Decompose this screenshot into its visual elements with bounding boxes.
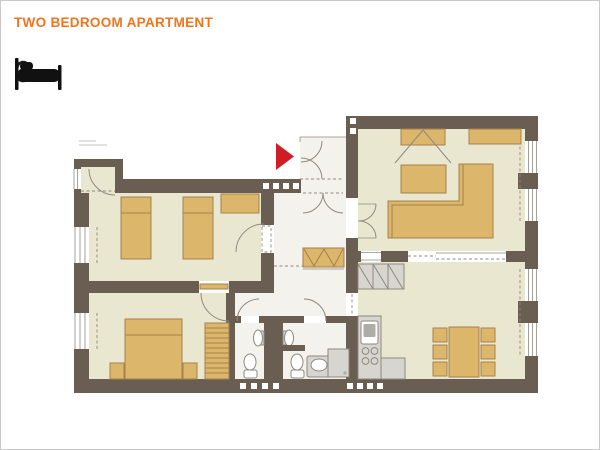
washbasin: [283, 330, 294, 346]
corridor-floor: [274, 266, 346, 293]
window-pier: [518, 301, 525, 323]
dining-chair: [433, 328, 447, 342]
coffee-table: [401, 165, 446, 193]
toilet: [291, 354, 304, 378]
twin-bed-1: [121, 197, 151, 259]
coat-closet: [303, 248, 344, 269]
dining-chair: [433, 345, 447, 359]
corridor-floor-lower: [235, 293, 346, 316]
bath-partition: [283, 345, 305, 351]
window: [71, 227, 89, 263]
shelf: [469, 129, 521, 144]
kitchen-counter-return: [381, 358, 405, 379]
dining-chair: [481, 345, 495, 359]
window: [525, 323, 539, 356]
entrance-arrow-icon: [276, 143, 294, 170]
bedroom-2-furniture: [110, 319, 229, 379]
nightstand-left: [110, 363, 124, 379]
kitchen-sink: [361, 321, 378, 344]
hallway-furniture: [303, 248, 344, 269]
dining-table: [449, 327, 479, 377]
window: [71, 313, 89, 349]
nightstand-right: [183, 363, 197, 379]
dining-chair: [481, 362, 495, 376]
dining-chair: [433, 362, 447, 376]
wardrobe: [205, 323, 229, 379]
dining-chair: [481, 328, 495, 342]
vestibule-floor: [300, 137, 346, 193]
window: [525, 141, 539, 173]
page: TWO BEDROOM APARTMENT 6: [0, 0, 600, 450]
twin-bed-2: [183, 197, 213, 259]
washing-machine: [328, 349, 349, 377]
floor-plan: [1, 1, 600, 450]
washbasin: [254, 330, 265, 346]
dresser: [221, 194, 259, 213]
kitchen-cabinets: [358, 264, 404, 289]
double-bed: [125, 319, 182, 379]
window-pier: [518, 173, 525, 189]
toilet: [244, 354, 257, 378]
window: [525, 189, 539, 221]
window: [71, 169, 81, 189]
window: [525, 269, 539, 301]
